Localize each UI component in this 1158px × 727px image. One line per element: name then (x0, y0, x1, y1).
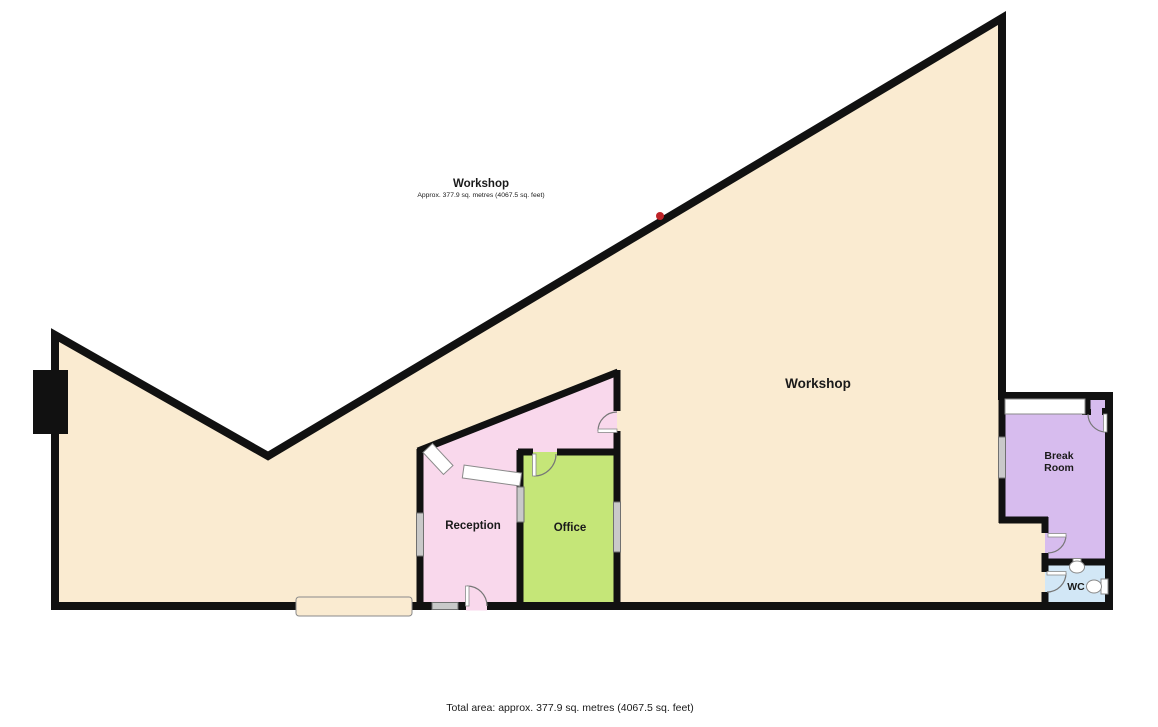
break-room-label-line1: Break (1044, 450, 1073, 462)
window-reception-bottom (432, 603, 458, 610)
floor-plan-page: Workshop Approx. 377.9 sq. metres (4067.… (0, 0, 1158, 722)
break-room-label-line2: Room (1044, 462, 1074, 474)
door-leaf (1104, 414, 1108, 432)
wc-toilet-tank (1101, 579, 1108, 594)
wc-toilet (1087, 579, 1109, 594)
window-reception-left (417, 513, 424, 556)
window-office-left (517, 487, 524, 522)
workshop-label: Workshop (785, 376, 851, 391)
red-marker-dot (656, 212, 664, 220)
window-break-room-left (999, 437, 1006, 478)
office-label: Office (554, 522, 587, 534)
plan-title: Workshop (453, 178, 509, 190)
wc-toilet-bowl (1087, 580, 1102, 593)
chimney-block (33, 370, 68, 434)
plan-subtitle: Approx. 377.9 sq. metres (4067.5 sq. fee… (417, 192, 544, 199)
floor-plan-drawing: Workshop Approx. 377.9 sq. metres (4067.… (0, 0, 1158, 722)
door-leaf (466, 586, 470, 606)
total-area-label: Total area: approx. 377.9 sq. metres (40… (446, 702, 693, 714)
door-leaf (598, 429, 617, 433)
wc-sink-basin (1070, 561, 1085, 573)
window-office-right (614, 502, 621, 552)
loading-bay-ramp (296, 597, 412, 616)
door-leaf (533, 454, 537, 476)
break-room-counter (1005, 399, 1085, 414)
wc-label: WC (1067, 581, 1085, 593)
door-leaf (1048, 534, 1066, 538)
reception-label: Reception (445, 520, 501, 532)
door-leaf (1047, 572, 1066, 576)
